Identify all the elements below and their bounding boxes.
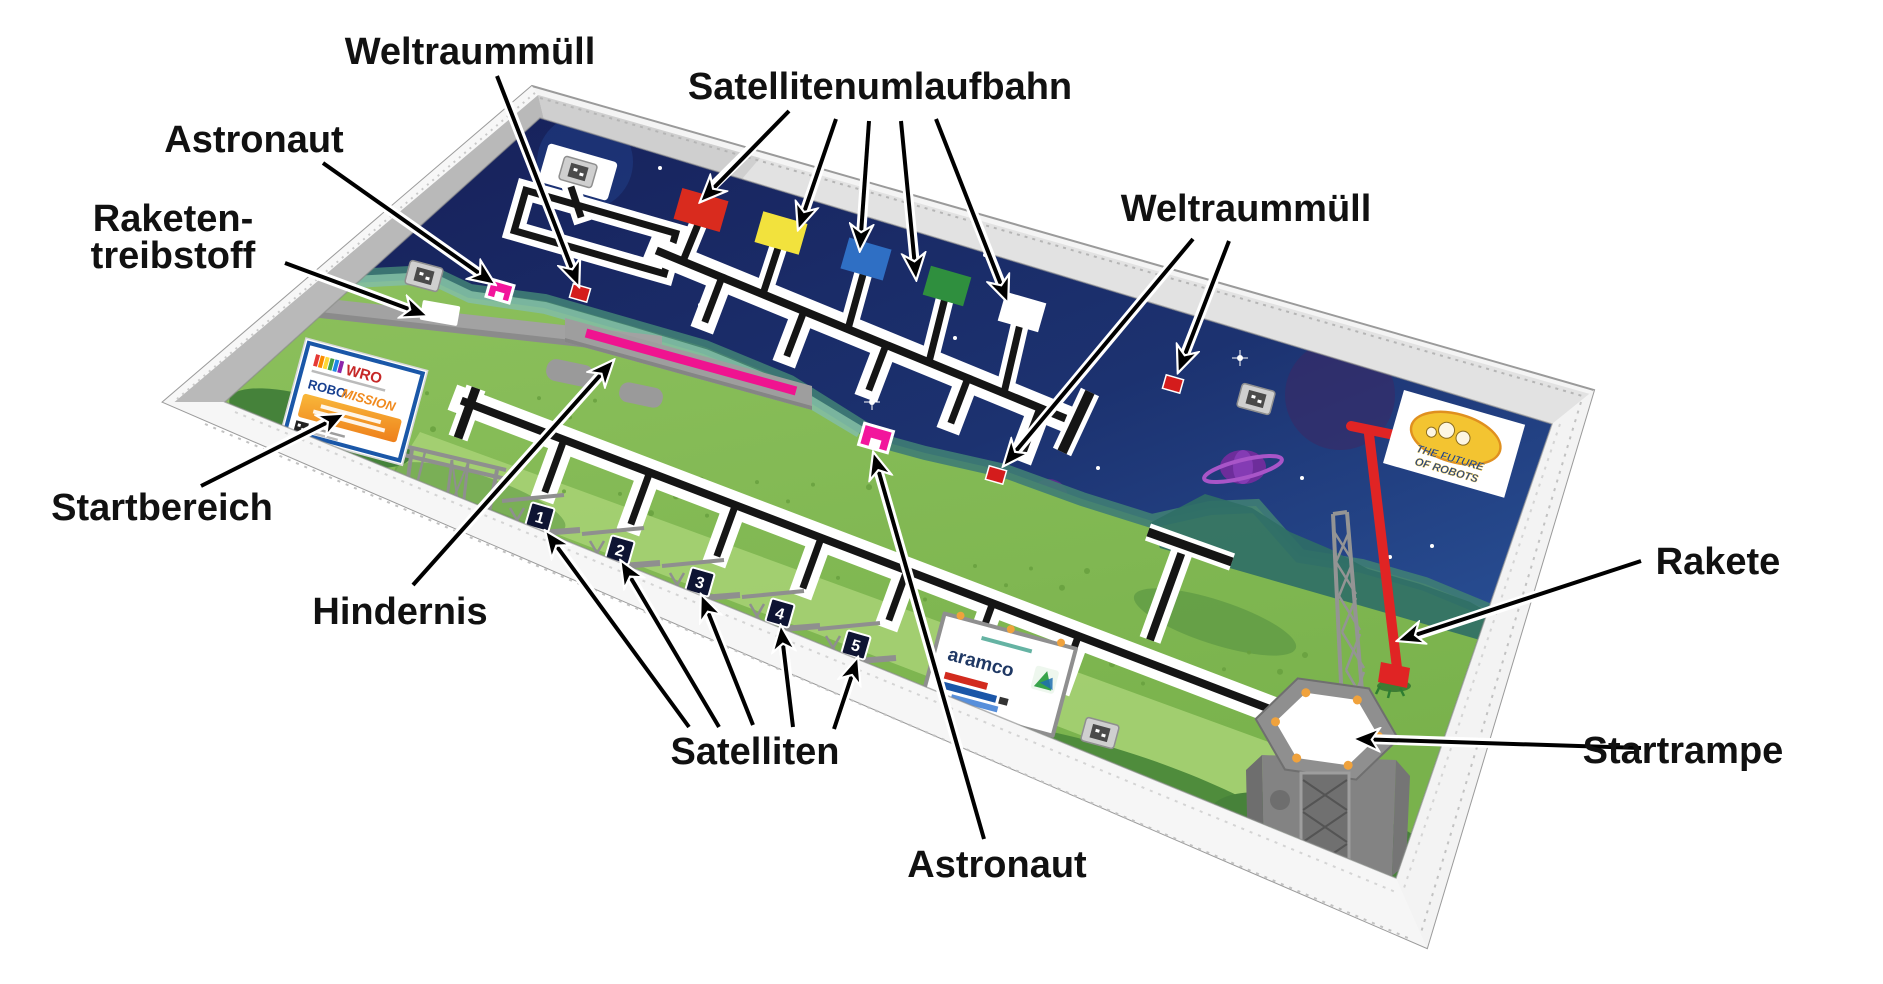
diagram-wro-robomission-field: 1 2 3 4 [0,0,1883,984]
label-startrampe: Startrampe [1583,730,1784,772]
label-rakete: Rakete [1656,541,1781,583]
label-satellitenumlaufbahn: Satellitenumlaufbahn [688,66,1072,108]
field-diagram-svg: 1 2 3 4 [0,0,1883,984]
label-satelliten: Satelliten [671,731,840,773]
label-weltraummuell-top: Weltraummüll [345,31,596,73]
label-hindernis: Hindernis [312,591,487,633]
label-raketentreibstoff-1: Raketen- [93,198,254,240]
label-astronaut-left: Astronaut [164,119,344,161]
label-startbereich: Startbereich [51,487,273,529]
label-astronaut-bottom: Astronaut [907,844,1087,886]
label-raketentreibstoff-2: treibstoff [91,235,256,277]
label-weltraummuell-right: Weltraummüll [1121,188,1372,230]
